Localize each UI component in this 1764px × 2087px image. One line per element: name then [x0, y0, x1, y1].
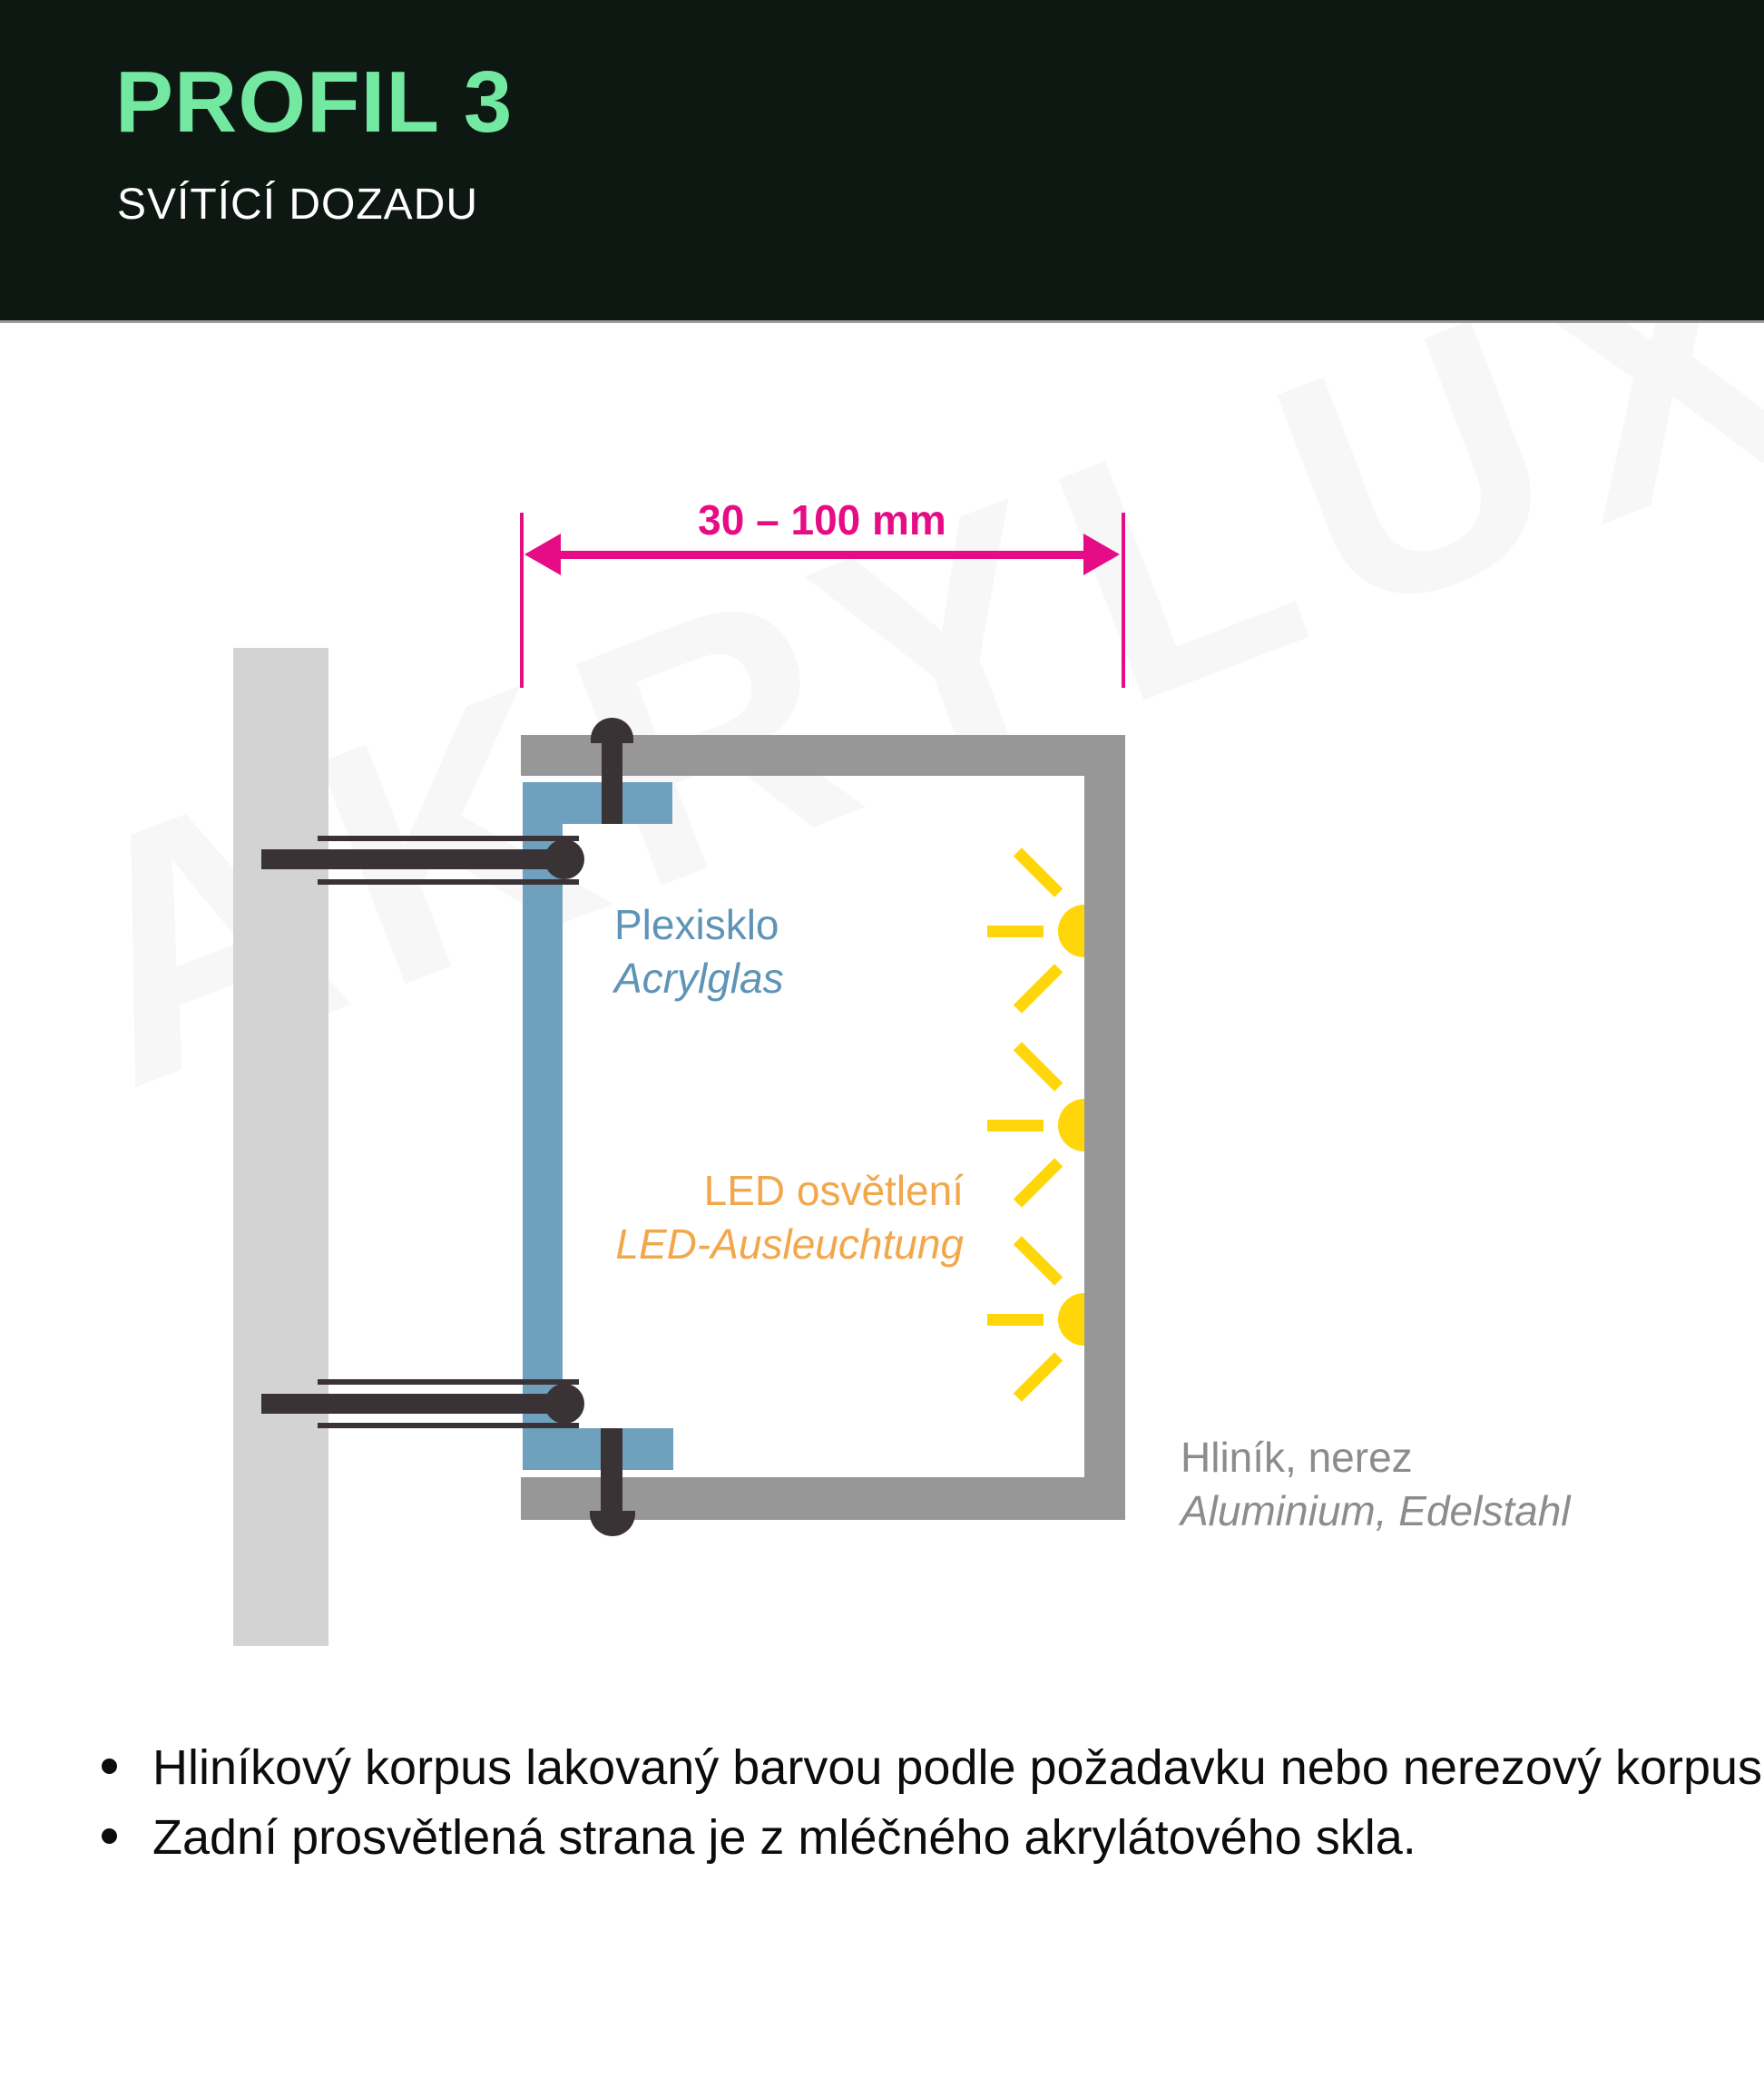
anchor-bolt	[261, 849, 564, 869]
header-band: PROFIL 3 SVÍTÍCÍ DOZADU	[0, 0, 1764, 323]
led-ray-icon	[987, 1120, 1044, 1132]
led-ray-icon	[1014, 964, 1063, 1013]
led-ray-icon	[987, 926, 1044, 937]
led-ray-icon	[1014, 1158, 1063, 1207]
dimension-arrow-line	[544, 551, 1109, 559]
led-ray-icon	[1014, 1042, 1063, 1091]
label-acrylic-de: Acrylglas	[614, 952, 784, 1005]
anchor-rod	[318, 879, 579, 885]
anchor-bolt-head	[544, 1384, 584, 1424]
note-text: Zadní prosvětlená strana je z mléčného a…	[152, 1805, 1416, 1870]
acrylic-back-panel	[523, 782, 563, 1470]
page-subtitle: SVÍTÍCÍ DOZADU	[117, 180, 478, 230]
page-title: PROFIL 3	[115, 53, 513, 152]
dimension-label: 30 – 100 mm	[521, 495, 1123, 544]
profile-right-bar	[1084, 735, 1125, 1520]
label-led: LED osvětlení LED-Ausleuchtung	[601, 1164, 964, 1271]
bullet-icon	[102, 1828, 117, 1844]
label-led-cz: LED osvětlení	[601, 1164, 964, 1218]
led-ray-icon	[1014, 848, 1063, 897]
screw-stem-bottom	[601, 1428, 622, 1515]
bullet-icon	[102, 1759, 117, 1774]
label-body-material: Hliník, nerez Aluminium, Edelstahl	[1181, 1431, 1571, 1538]
screw-head-bottom	[590, 1511, 635, 1536]
label-body-de: Aluminium, Edelstahl	[1181, 1484, 1571, 1538]
anchor-bolt	[261, 1394, 564, 1414]
anchor-rod	[318, 836, 579, 841]
note-text: Hliníkový korpus lakovaný barvou podle p…	[152, 1735, 1764, 1800]
led-ray-icon	[987, 1314, 1044, 1326]
led-ray-icon	[1014, 1352, 1063, 1401]
page: PROFIL 3 SVÍTÍCÍ DOZADU AKRYLUX	[0, 0, 1764, 2087]
label-body-cz: Hliník, nerez	[1181, 1431, 1571, 1484]
screw-stem-top	[602, 730, 622, 824]
list-item: Hliníkový korpus lakovaný barvou podle p…	[102, 1735, 1764, 1805]
anchor-rod	[318, 1423, 579, 1428]
acrylic-bottom-flange	[523, 1428, 673, 1470]
notes-list: Hliníkový korpus lakovaný barvou podle p…	[102, 1735, 1764, 1875]
wall-shape	[233, 648, 328, 1646]
label-led-de: LED-Ausleuchtung	[601, 1218, 964, 1271]
anchor-bolt-head	[544, 839, 584, 879]
label-acrylic-cz: Plexisklo	[614, 898, 784, 952]
led-ray-icon	[1014, 1236, 1063, 1285]
anchor-rod	[318, 1379, 579, 1385]
label-acrylic: Plexisklo Acrylglas	[614, 898, 784, 1005]
list-item: Zadní prosvětlená strana je z mléčného a…	[102, 1805, 1764, 1875]
